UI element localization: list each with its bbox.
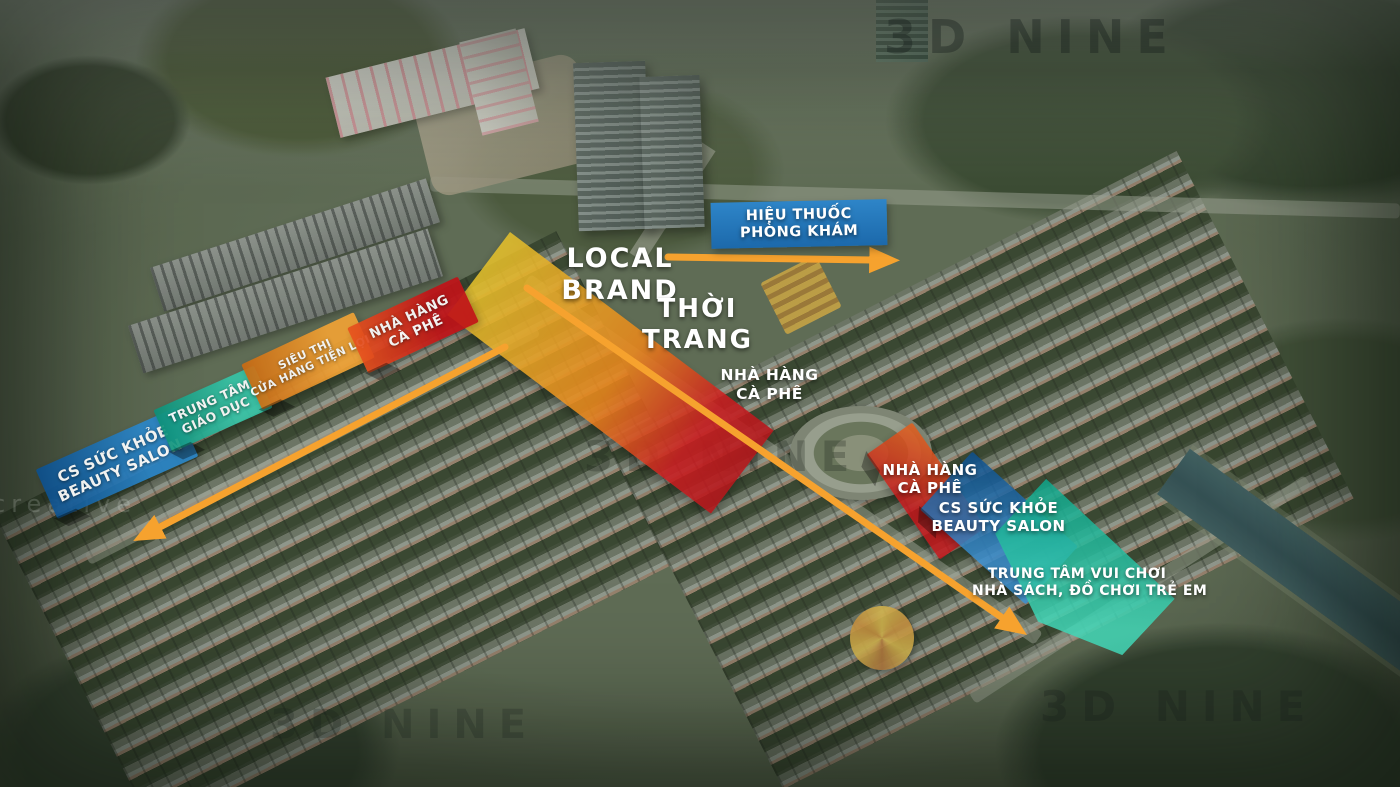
health-beauty-right-line1: CS SỨC KHỎE bbox=[926, 499, 1071, 517]
kids-center-line2: NHÀ SÁCH, ĐỒ CHƠI TRẺ EM bbox=[972, 583, 1182, 600]
label-fashion: THỜI TRANG bbox=[635, 294, 760, 356]
direction-arrows bbox=[0, 0, 1400, 787]
restaurant-center-line2: CÀ PHÊ bbox=[712, 385, 827, 404]
restaurant-right-line1: NHÀ HÀNG bbox=[874, 461, 986, 479]
masterplan-scene: 3D NINE 3D NINE 3D NINE 3D NINE creative… bbox=[0, 0, 1400, 787]
label-kids-center: TRUNG TÂM VUI CHƠI NHÀ SÁCH, ĐỒ CHƠI TRẺ… bbox=[972, 566, 1182, 600]
restaurant-center-line1: NHÀ HÀNG bbox=[712, 366, 827, 385]
label-health-beauty-right: CS SỨC KHỎE BEAUTY SALON bbox=[926, 499, 1071, 535]
restaurant-right-line2: CÀ PHÊ bbox=[874, 479, 986, 497]
fashion-line1: THỜI bbox=[635, 294, 760, 325]
pharmacy-line2: PHÒNG KHÁM bbox=[711, 222, 887, 243]
label-restaurant-right: NHÀ HÀNG CÀ PHÊ bbox=[874, 461, 986, 497]
kids-center-line1: TRUNG TÂM VUI CHƠI bbox=[972, 566, 1182, 583]
fashion-line2: TRANG bbox=[635, 325, 760, 356]
health-beauty-right-line2: BEAUTY SALON bbox=[926, 517, 1071, 535]
label-restaurant-center: NHÀ HÀNG CÀ PHÊ bbox=[712, 366, 827, 403]
arrow-left-street bbox=[158, 347, 505, 528]
label-pharmacy-clinic: HIỆU THUỐC PHÒNG KHÁM bbox=[711, 199, 888, 249]
local-brand-line1: LOCAL bbox=[553, 243, 687, 275]
arrow-top-street bbox=[668, 257, 872, 260]
arrow-center-street bbox=[527, 288, 1004, 619]
